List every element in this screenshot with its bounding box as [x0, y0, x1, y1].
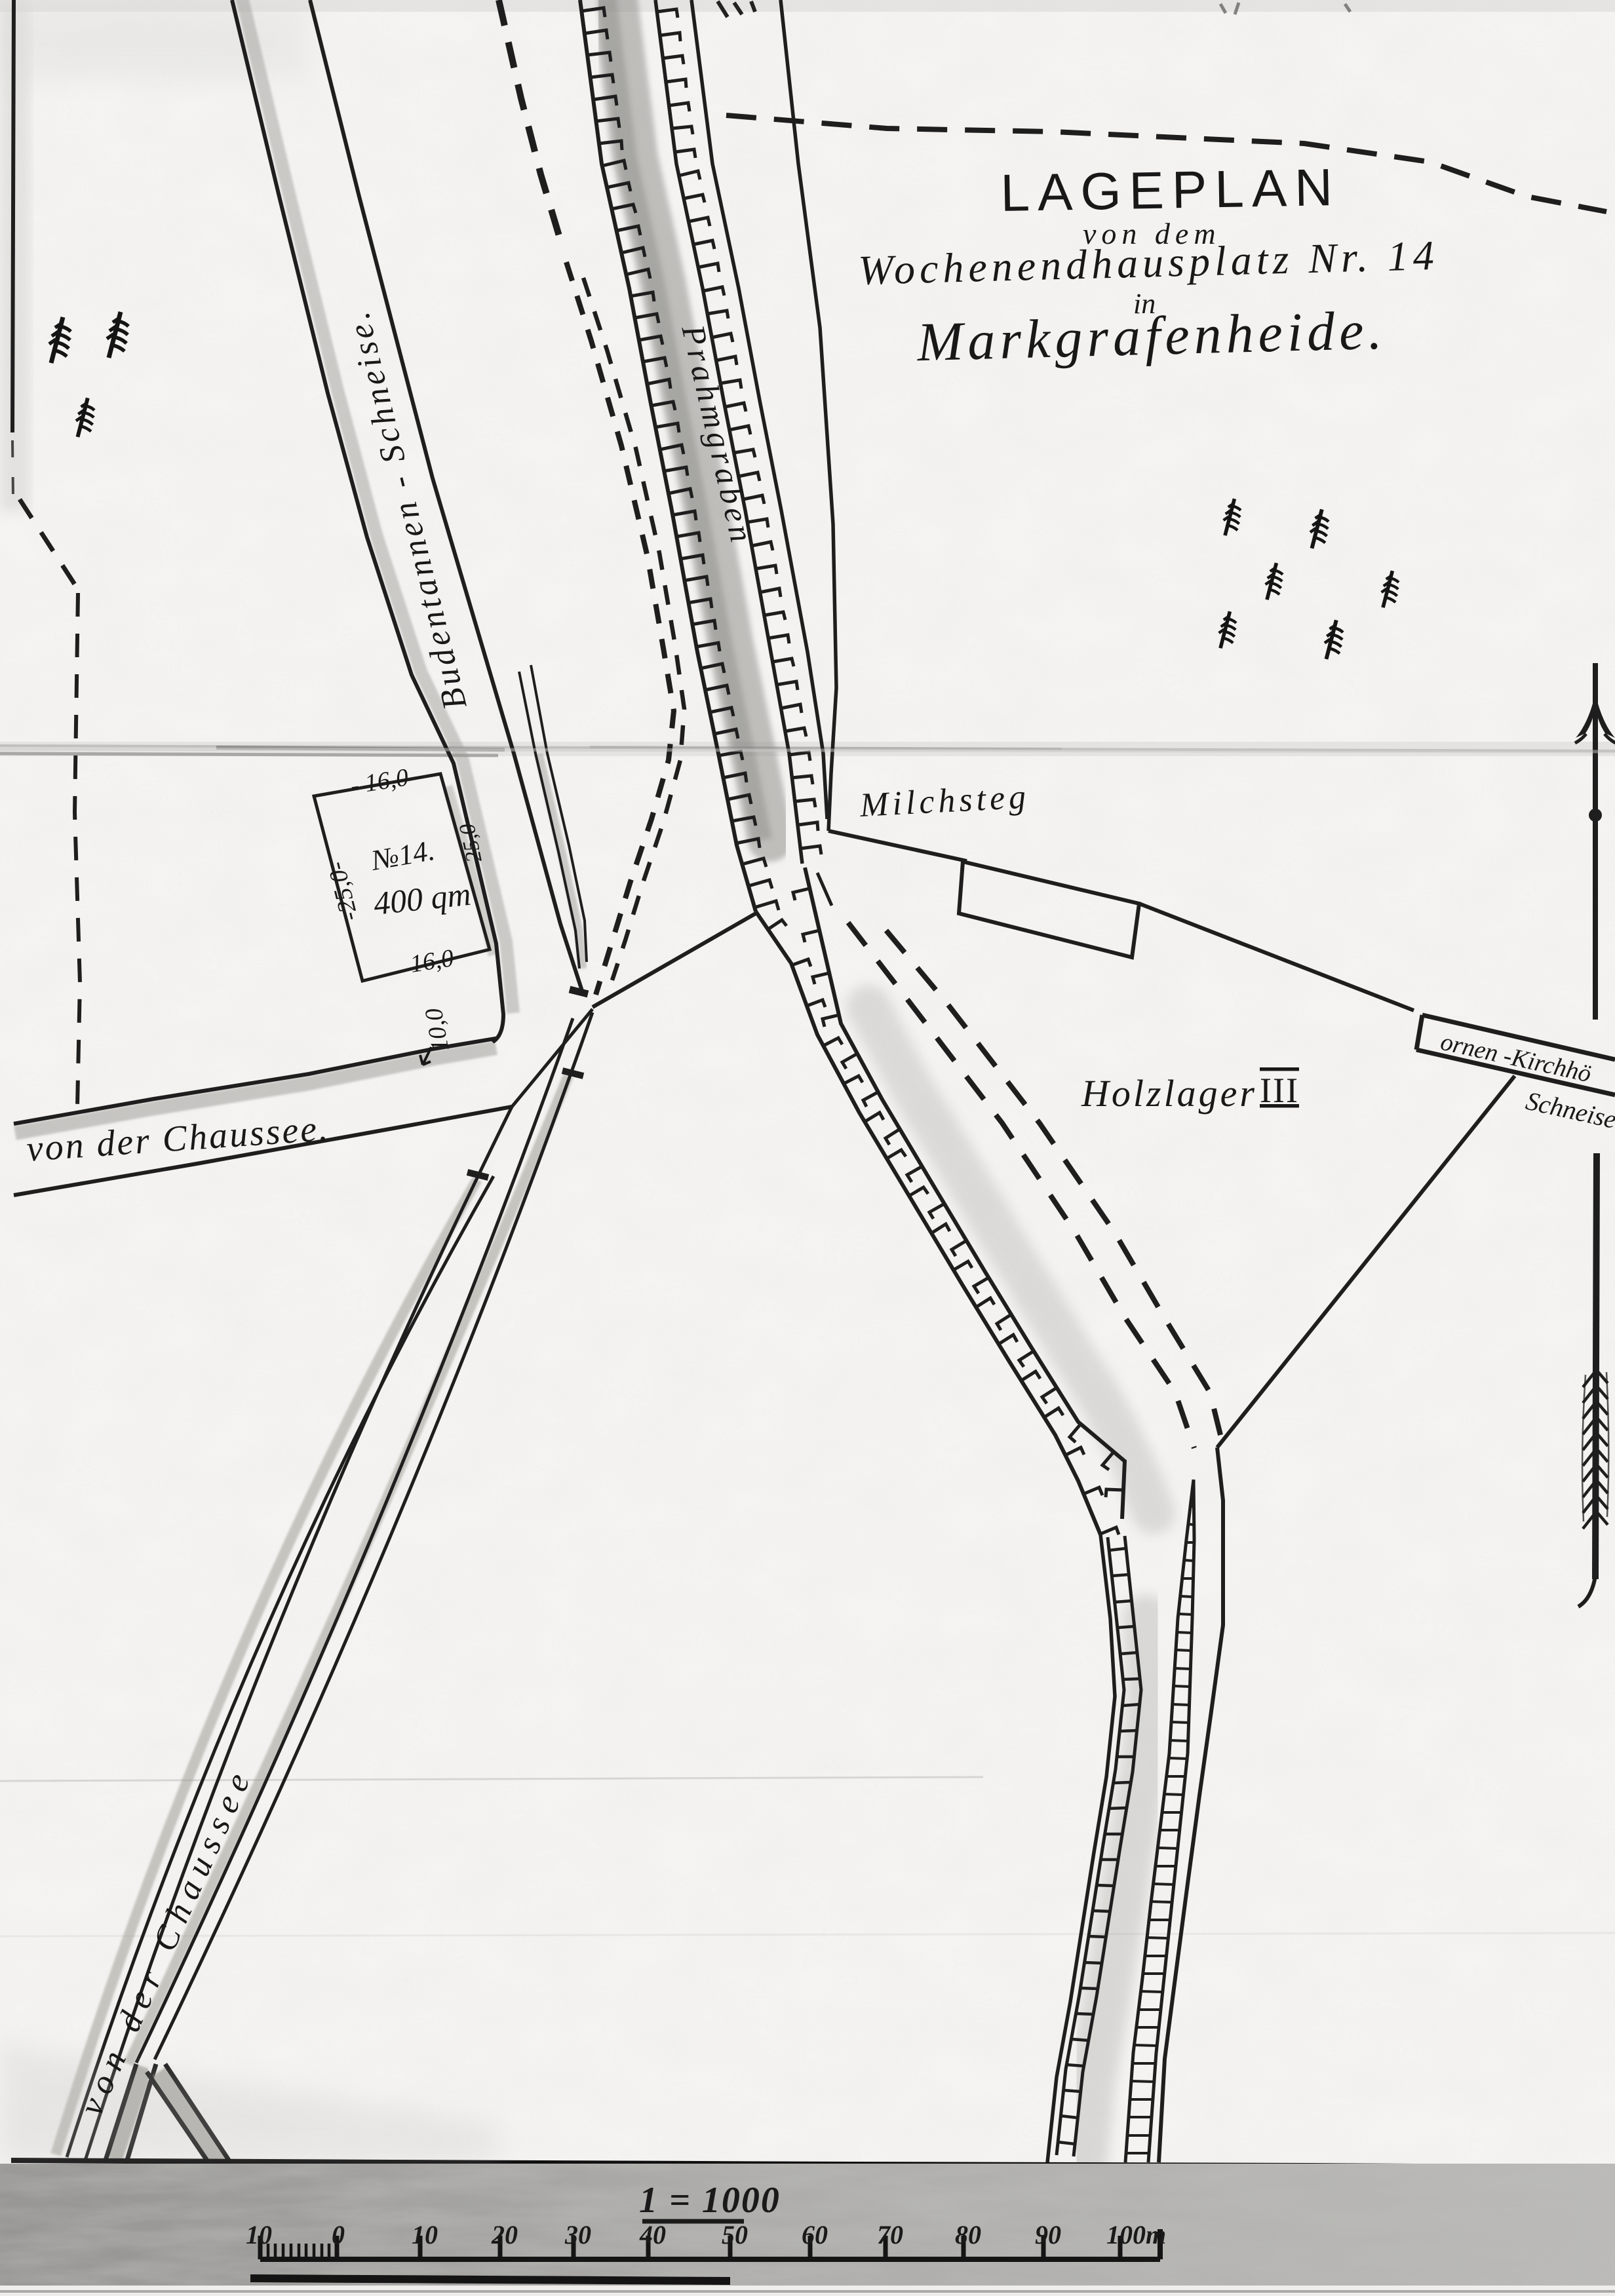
svg-text:60: 60 — [802, 2220, 828, 2249]
svg-text:Markgrafenheide.: Markgrafenheide. — [916, 299, 1387, 373]
svg-text:LAGEPLAN: LAGEPLAN — [1000, 158, 1341, 222]
svg-text:50: 50 — [722, 2220, 748, 2249]
svg-text:1 = 1000: 1 = 1000 — [639, 2180, 781, 2221]
svg-text:100m: 100m — [1106, 2220, 1166, 2249]
svg-text:0: 0 — [332, 2220, 345, 2249]
svg-text:10: 10 — [246, 2220, 272, 2249]
svg-text:90: 90 — [1035, 2220, 1061, 2249]
svg-text:20: 20 — [491, 2220, 518, 2249]
svg-text:Holzlager: Holzlager — [1081, 1072, 1257, 1115]
svg-text:10: 10 — [412, 2220, 438, 2249]
svg-text:III: III — [1260, 1071, 1299, 1110]
svg-text:40: 40 — [639, 2220, 666, 2249]
svg-text:30: 30 — [564, 2220, 591, 2249]
svg-text:70: 70 — [877, 2220, 903, 2249]
svg-text:80: 80 — [955, 2220, 981, 2249]
